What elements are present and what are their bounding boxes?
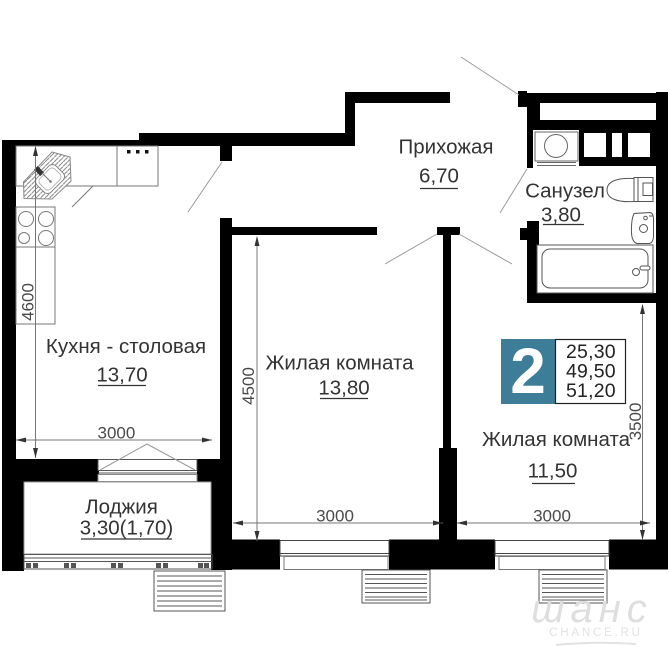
svg-text:Жилая комната: Жилая комната	[482, 428, 631, 451]
svg-text:шанс: шанс	[531, 587, 652, 631]
svg-text:Лоджия: Лоджия	[85, 496, 158, 519]
svg-text:13,80: 13,80	[318, 377, 369, 400]
svg-text:Жилая комната: Жилая комната	[265, 352, 414, 375]
svg-text:3,80: 3,80	[541, 204, 581, 227]
svg-text:Санузел: Санузел	[525, 180, 605, 203]
svg-text:2: 2	[510, 335, 546, 407]
svg-text:51,20: 51,20	[566, 380, 616, 402]
svg-text:11,50: 11,50	[528, 460, 578, 483]
svg-text:3,30(1,70): 3,30(1,70)	[80, 517, 173, 540]
svg-text:4500: 4500	[239, 367, 258, 405]
svg-text:6,70: 6,70	[419, 165, 459, 188]
svg-text:CHANCE.RU: CHANCE.RU	[549, 627, 643, 639]
svg-text:4600: 4600	[19, 283, 38, 321]
svg-text:3000: 3000	[97, 424, 135, 443]
svg-text:3000: 3000	[316, 507, 354, 526]
svg-text:Кухня - столовая: Кухня - столовая	[46, 335, 206, 358]
svg-text:13,70: 13,70	[96, 364, 147, 387]
svg-text:Прихожая: Прихожая	[399, 136, 494, 159]
svg-text:3000: 3000	[533, 507, 571, 526]
